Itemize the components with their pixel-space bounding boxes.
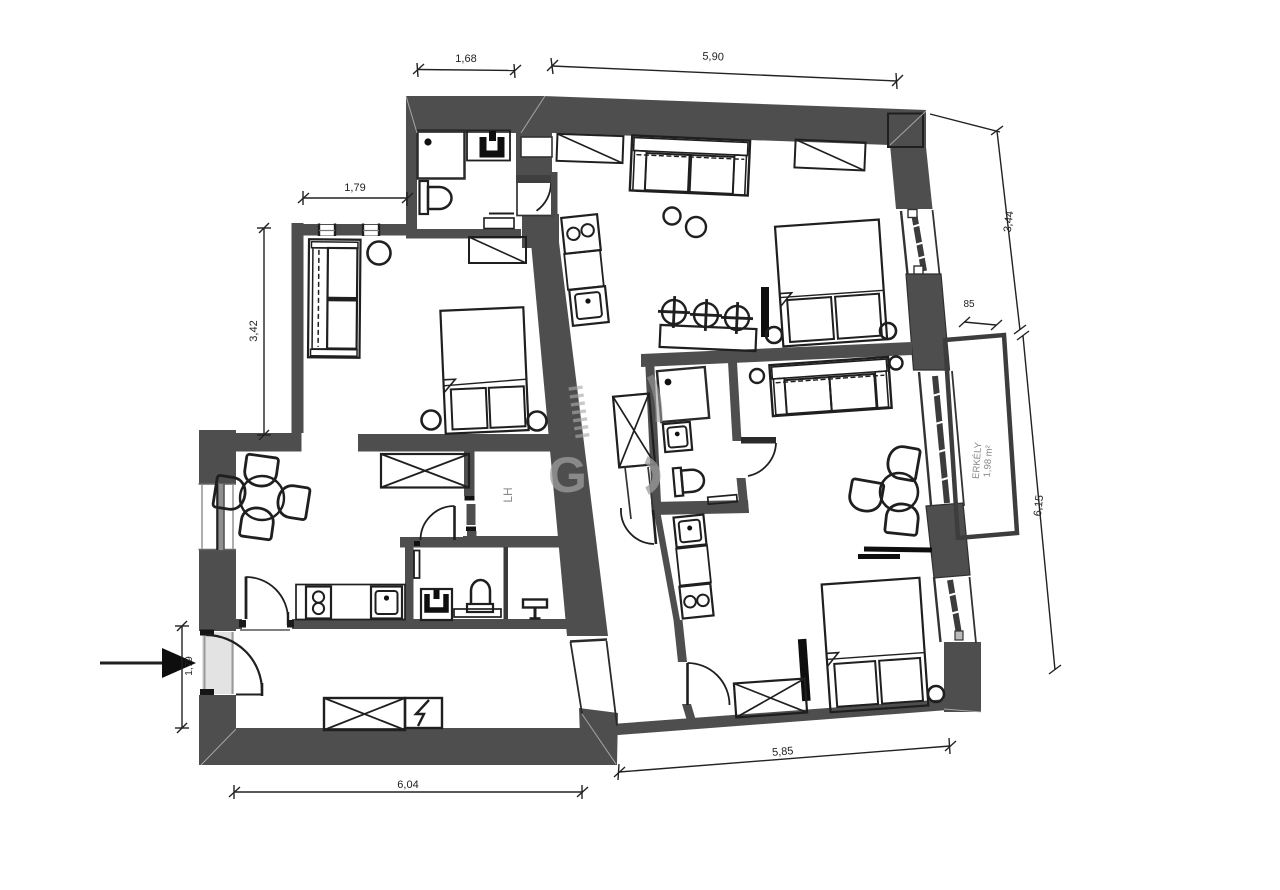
svg-text:6,04: 6,04 [397,779,418,791]
svg-text:1,79: 1,79 [344,182,365,194]
svg-text:G: G [548,447,587,503]
svg-text:6,15: 6,15 [1032,494,1046,517]
svg-text:LH: LH [501,487,515,502]
svg-text:1,68: 1,68 [455,53,476,65]
svg-text:1,98 m²: 1,98 m² [982,445,995,478]
svg-text:3,42: 3,42 [248,320,260,341]
svg-text:85: 85 [963,299,975,310]
svg-text:5,85: 5,85 [772,745,794,759]
svg-text:1,79: 1,79 [184,656,195,676]
svg-text:5,90: 5,90 [702,51,724,64]
